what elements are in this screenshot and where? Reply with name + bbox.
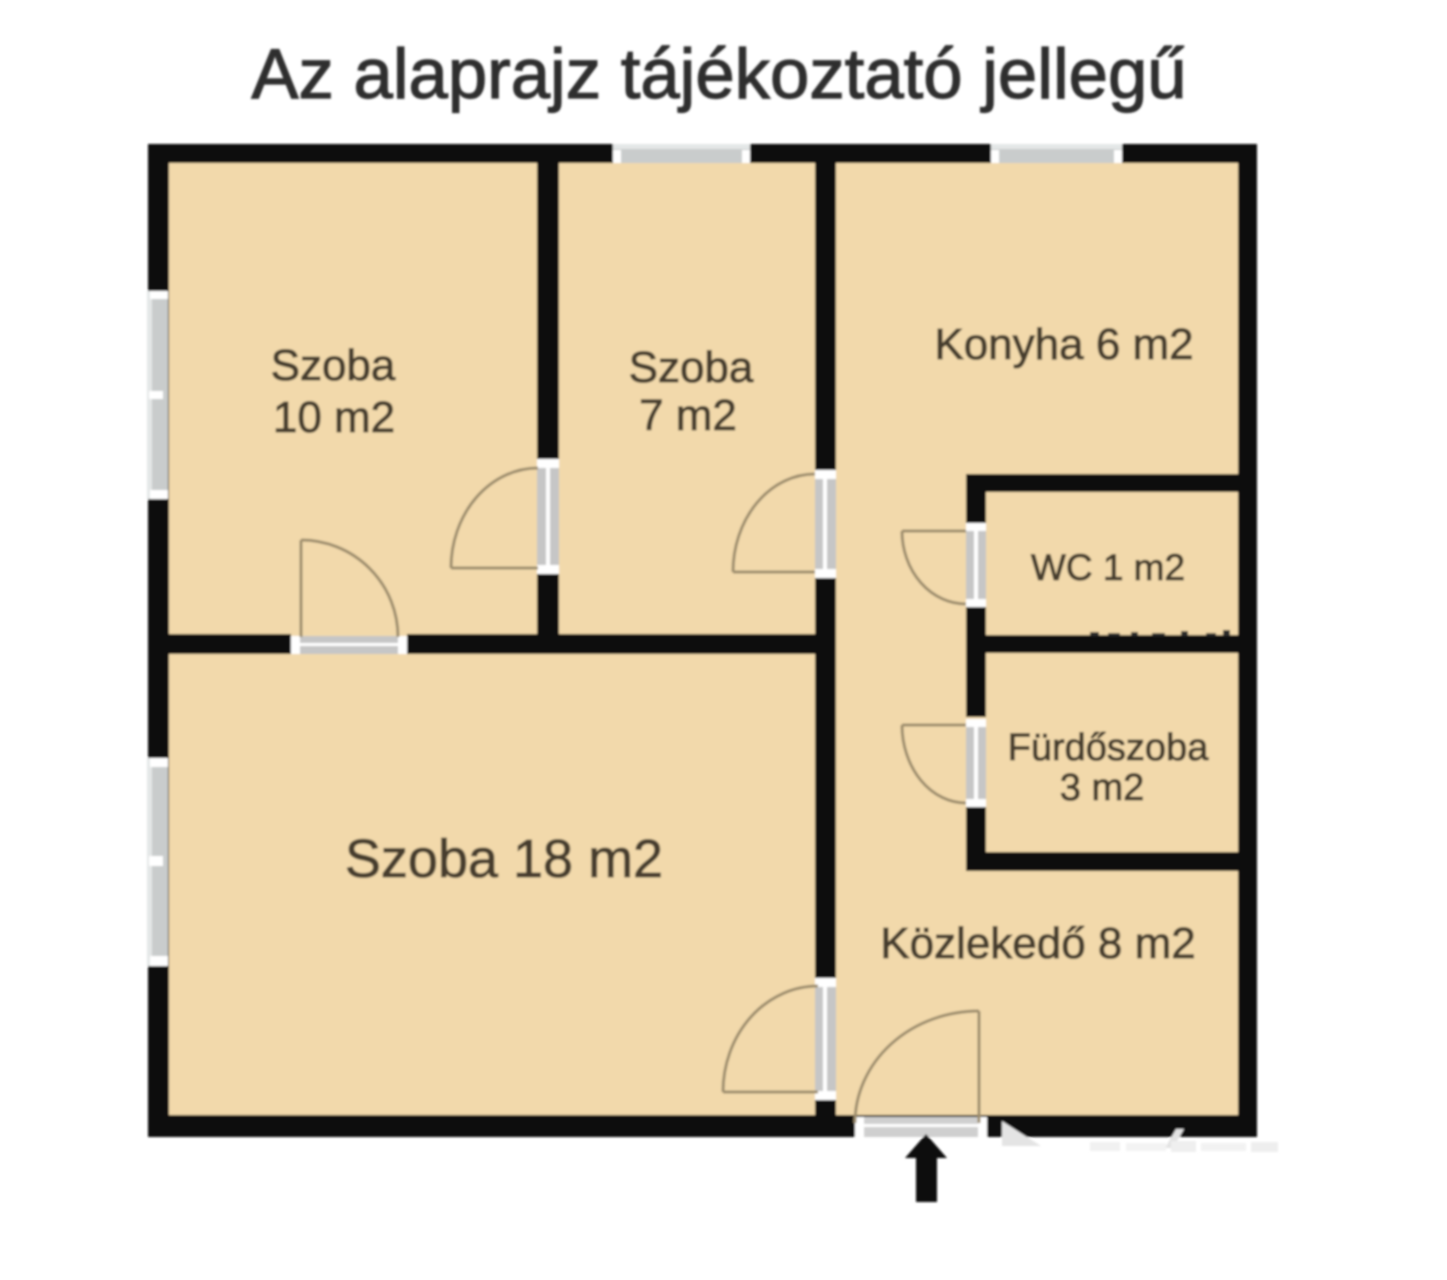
svg-text:7 m2: 7 m2 [639, 391, 737, 440]
svg-text:Fürdőszoba: Fürdőszoba [1008, 727, 1210, 769]
svg-text:Konyha 6 m2: Konyha 6 m2 [934, 320, 1193, 369]
svg-text:Az alaprajz tájékoztató jelleg: Az alaprajz tájékoztató jellegű [251, 34, 1186, 113]
svg-text:Szoba 18 m2: Szoba 18 m2 [345, 829, 663, 889]
svg-text:WC 1 m2: WC 1 m2 [1031, 547, 1185, 588]
svg-text:10 m2: 10 m2 [273, 393, 395, 442]
svg-text:3 m2: 3 m2 [1060, 767, 1144, 809]
svg-text:Szoba: Szoba [629, 343, 754, 392]
svg-text:Közlekedő 8 m2: Közlekedő 8 m2 [880, 919, 1196, 968]
svg-text:Szoba: Szoba [271, 341, 396, 390]
